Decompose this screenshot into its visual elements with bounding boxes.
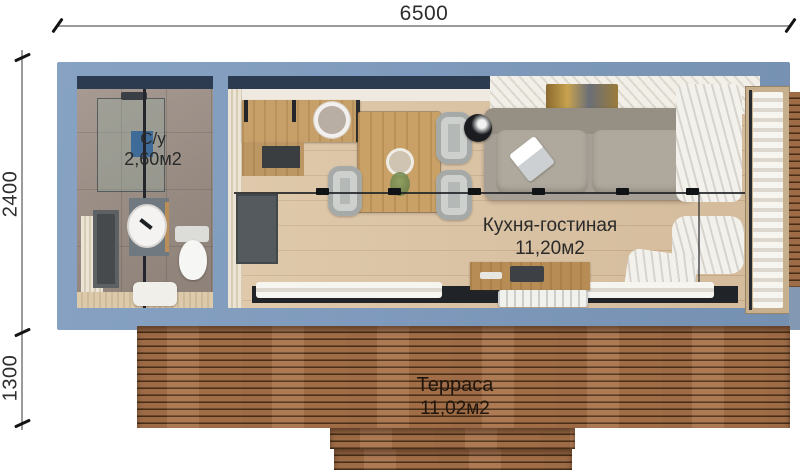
dining-chair-right-bottom	[436, 170, 472, 220]
terrace-step-2	[334, 449, 572, 470]
dimension-main-depth-label: 2400	[0, 171, 23, 218]
bath-stool	[133, 282, 177, 306]
dining-chair-left	[328, 166, 362, 216]
bathroom-area: 2,60м2	[95, 149, 211, 170]
seam-clamp-3	[468, 188, 481, 195]
floor-plan: 6500 2400 1300 С/у 2,60м2	[0, 0, 800, 474]
toilet-bowl	[179, 240, 207, 280]
glass-partition-edge	[698, 192, 700, 288]
white-blanket	[676, 84, 742, 202]
side-deck-right	[789, 92, 800, 287]
bottom-curtain-right	[584, 282, 714, 298]
kitchen-living-label: Кухня-гостиная	[430, 214, 670, 237]
desk-remote	[480, 272, 502, 279]
wall-rug	[546, 84, 618, 110]
terrace-area: 11,02м2	[345, 397, 565, 421]
wall-niche	[93, 210, 119, 288]
bathroom-label-block: С/у 2,60м2	[95, 128, 211, 170]
wall-panel-tv	[236, 194, 278, 264]
seam-clamp-1	[316, 188, 329, 195]
seam-clamp-2	[388, 188, 401, 195]
kitchen-living-label-block: Кухня-гостиная 11,20м2	[430, 214, 670, 260]
bottom-curtain-left	[256, 282, 442, 298]
kitchen-living-area: 11,20м2	[430, 237, 670, 260]
right-window-glass-edge	[749, 90, 752, 310]
seam-clamp-5	[616, 188, 629, 195]
counter-bracket-1	[244, 100, 248, 122]
bathroom-header-wall	[77, 76, 213, 89]
ac-unit	[498, 290, 588, 307]
module-seam-line	[234, 192, 754, 194]
dimension-width-label: 6500	[400, 2, 449, 26]
kitchen-sink	[314, 102, 350, 138]
counter-bracket-2	[292, 100, 296, 122]
wall-corner-right	[789, 287, 800, 330]
floor-lamp	[464, 114, 492, 142]
counter-niche	[262, 146, 300, 168]
terrace-label-block: Терраса 11,02м2	[345, 373, 565, 421]
terrace-label: Терраса	[345, 373, 565, 397]
right-window-frame	[745, 86, 790, 314]
desk-device	[510, 266, 544, 282]
seam-clamp-4	[532, 188, 545, 195]
kitchen-header-wall	[228, 76, 490, 89]
sofa-cushion-right	[592, 130, 684, 194]
kitchen-living-room: Кухня-гостиная 11,20м2	[228, 76, 760, 308]
right-curtain	[753, 92, 783, 308]
terrace-step-1	[330, 428, 575, 449]
bathroom-room: С/у 2,60м2	[77, 76, 213, 308]
dimension-terrace-depth-label: 1300	[0, 355, 23, 402]
bathroom-label: С/у	[95, 128, 211, 149]
house-walls: С/у 2,60м2	[57, 62, 790, 330]
